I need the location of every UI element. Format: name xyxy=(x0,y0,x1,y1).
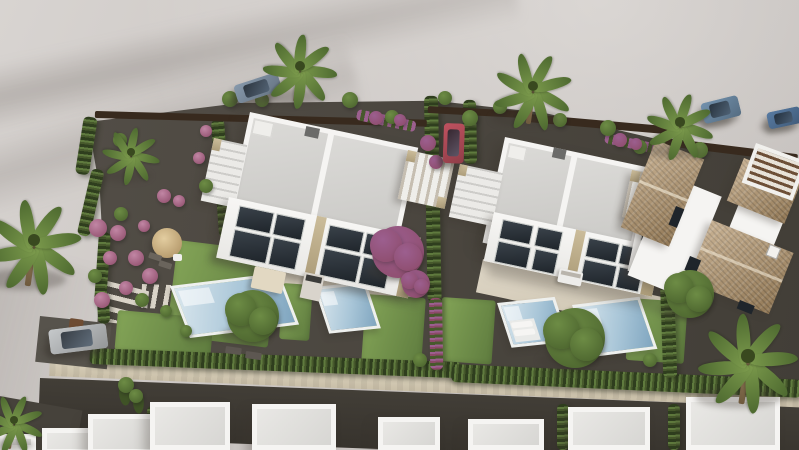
window xyxy=(534,226,564,251)
purple-bush xyxy=(630,138,642,150)
neighbor-rooftop xyxy=(378,417,440,450)
pink-bush xyxy=(89,219,107,237)
green-bush xyxy=(135,293,149,307)
pink-bush xyxy=(103,251,117,265)
pink-bush xyxy=(142,268,158,284)
green-bush xyxy=(160,305,172,317)
car-cabin xyxy=(60,329,94,349)
palm-crown xyxy=(295,61,305,71)
pool-steps xyxy=(320,290,338,305)
lawn xyxy=(438,297,496,365)
pink-bush xyxy=(193,152,205,164)
palm-crown xyxy=(10,416,18,424)
render-canvas xyxy=(0,0,799,450)
purple-bush xyxy=(420,135,436,151)
palm-crown xyxy=(675,117,684,126)
car-cabin xyxy=(243,78,271,98)
green-bush xyxy=(199,179,213,193)
pink-bush xyxy=(173,195,185,207)
stone-pillar xyxy=(458,164,468,176)
window xyxy=(272,213,306,241)
pink-bush xyxy=(138,220,150,232)
sofa-cushions xyxy=(561,270,581,278)
pink-bush xyxy=(157,189,171,203)
glass-door xyxy=(229,229,272,264)
neighbor-rooftop xyxy=(568,407,650,450)
neighbor-rooftop xyxy=(252,404,336,450)
stone-pillar xyxy=(406,150,417,163)
neighbor-rooftop xyxy=(150,402,230,450)
pool-steps xyxy=(178,287,215,306)
green-bush xyxy=(413,353,427,367)
green-bush xyxy=(438,91,452,105)
purple-bush xyxy=(394,114,406,126)
pink-bush xyxy=(119,281,133,295)
green-bush xyxy=(462,110,478,126)
flowering-hedge xyxy=(429,298,443,370)
garden-tree xyxy=(686,286,712,312)
palm-crown xyxy=(127,148,135,156)
glass-door xyxy=(531,248,559,275)
purple-bush xyxy=(369,111,383,125)
neighbor-rooftop xyxy=(468,419,544,450)
cypress-hedge xyxy=(668,404,680,450)
stone-pillar xyxy=(212,138,222,151)
roof-ridge xyxy=(639,180,688,202)
car-cabin xyxy=(773,110,794,125)
garden-table xyxy=(173,254,182,261)
green-bush xyxy=(342,92,358,108)
car xyxy=(443,123,465,164)
green-bush xyxy=(129,389,143,403)
green-bush xyxy=(88,269,102,283)
grill-top xyxy=(305,274,322,283)
purple-bush xyxy=(613,133,627,147)
pink-bush xyxy=(200,125,212,137)
pink-bush xyxy=(128,250,144,266)
garden-tree xyxy=(570,328,603,361)
neighbor-rooftop xyxy=(88,414,156,450)
car-cabin xyxy=(708,100,732,119)
green-bush xyxy=(600,120,616,136)
pink-bush xyxy=(110,225,126,241)
palm-crown xyxy=(741,349,754,362)
green-bush xyxy=(114,207,128,221)
glass-door xyxy=(319,248,362,283)
glass-door xyxy=(268,237,301,270)
green-bush xyxy=(643,353,657,367)
green-bush xyxy=(180,325,192,337)
pink-bush xyxy=(94,292,110,308)
car-cabin xyxy=(447,130,459,157)
